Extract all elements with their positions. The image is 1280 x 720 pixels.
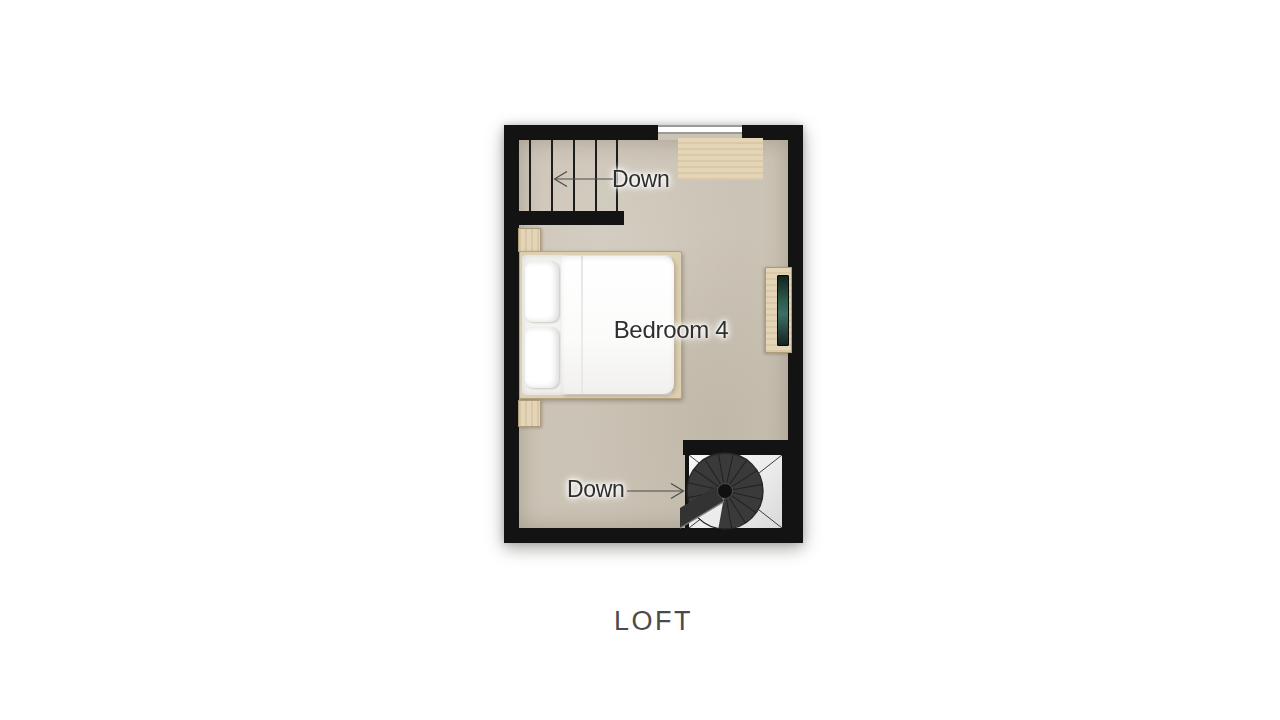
arrow-left-icon [551, 169, 613, 189]
floor-plan: Down Bedroom 4 Down [504, 125, 803, 543]
nightstand-top [518, 228, 541, 252]
nightstand-bottom [518, 400, 541, 427]
floor-title: LOFT [504, 606, 803, 637]
stair-enclosure-wall-right [782, 440, 803, 543]
pillow [525, 261, 559, 322]
staircase-wall [504, 211, 624, 225]
stairs-down-label: Down [612, 166, 670, 193]
spiral-down-label: Down [567, 476, 625, 503]
spiral-staircase-icon [680, 446, 770, 536]
room-name-label: Bedroom 4 [561, 316, 781, 344]
arrow-right-icon [627, 481, 687, 501]
dresser [678, 138, 763, 180]
pillow [525, 327, 559, 388]
page: { "page": { "floor_title": "LOFT" }, "pl… [0, 0, 1280, 720]
window-glazing [658, 125, 742, 134]
